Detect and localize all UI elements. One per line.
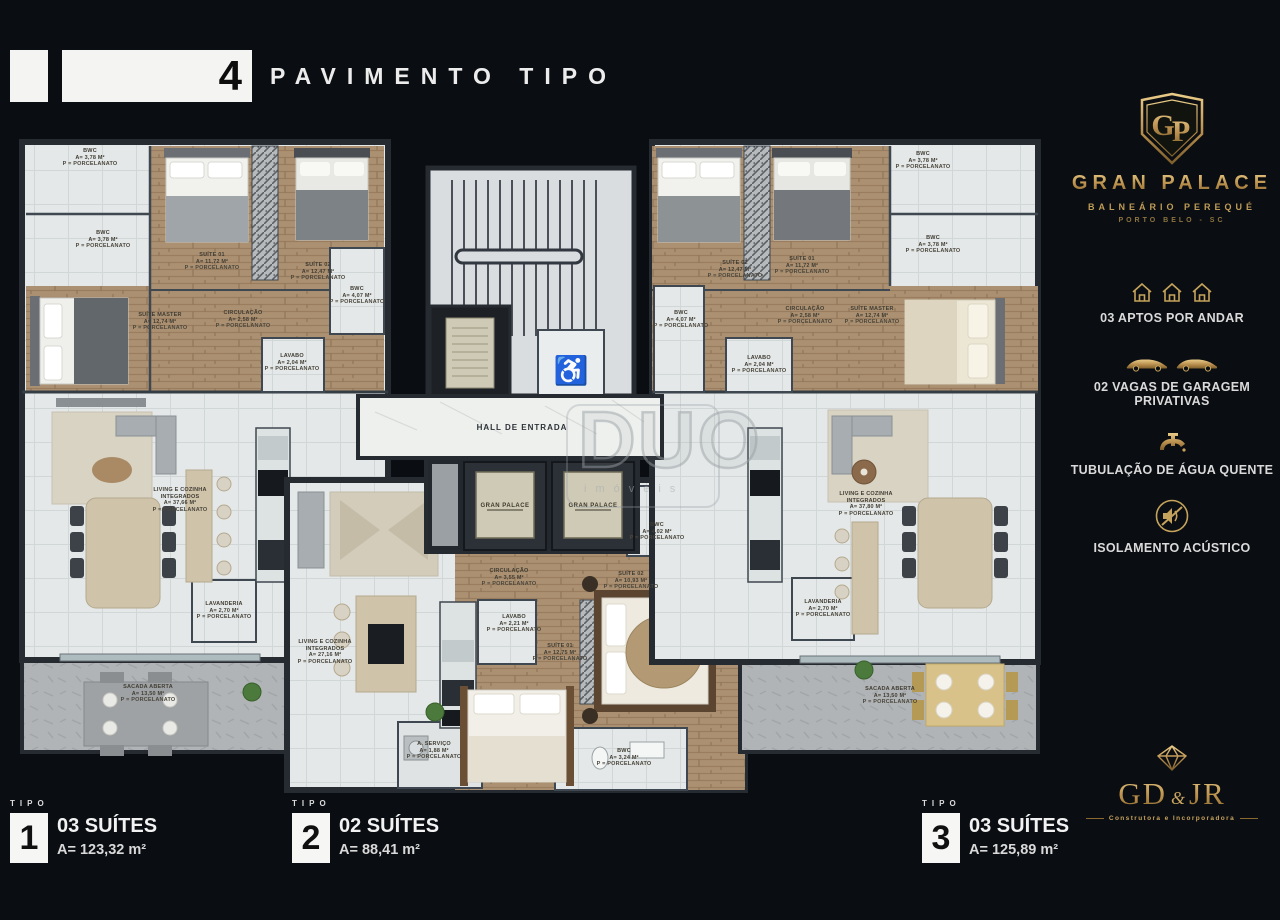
legend-tipo-caption: TIPO bbox=[922, 799, 1069, 808]
builder-ampersand: & bbox=[1167, 788, 1189, 808]
builder-name-right: JR bbox=[1189, 776, 1226, 811]
diamond-icon bbox=[1150, 744, 1194, 772]
legend-tipo-caption: TIPO bbox=[292, 799, 439, 808]
elevator-label: GRAN PALACE bbox=[568, 503, 617, 509]
bed-suite01-t1 bbox=[164, 148, 250, 242]
amenity-acustico: ISOLAMENTO ACÚSTICO bbox=[1067, 498, 1277, 555]
legend-area: A= 88,41 m² bbox=[339, 842, 439, 858]
houses-icon bbox=[1067, 282, 1277, 304]
header-bar: 4 bbox=[62, 50, 252, 102]
amenity-label: ISOLAMENTO ACÚSTICO bbox=[1067, 541, 1277, 555]
amenity-label: 02 VAGAS DE GARAGEM PRIVATIVAS bbox=[1067, 380, 1277, 408]
legend-tipo1: TIPO 1 03 SUÍTES A= 123,32 m² bbox=[10, 799, 157, 863]
brand-district: BALNEÁRIO PEREQUÉ bbox=[1067, 202, 1277, 212]
amenity-aptos: 03 APTOS POR ANDAR bbox=[1067, 282, 1277, 325]
cars-icon bbox=[1067, 355, 1277, 373]
svg-text:P: P bbox=[1172, 115, 1190, 148]
bed-suite01-t2 bbox=[460, 686, 574, 786]
gran-palace-shield-icon: G P bbox=[1139, 92, 1205, 166]
amenity-label: 03 APTOS POR ANDAR bbox=[1067, 311, 1277, 325]
floor-number: 4 bbox=[219, 55, 242, 97]
hall-label: HALL DE ENTRADA bbox=[477, 423, 568, 432]
legend-area: A= 123,32 m² bbox=[57, 842, 157, 858]
legend-suites: 03 SUÍTES bbox=[57, 815, 157, 838]
amenity-garagem: 02 VAGAS DE GARAGEM PRIVATIVAS bbox=[1067, 355, 1277, 408]
brand-name: GRAN PALACE bbox=[1067, 172, 1277, 195]
wheelchair-icon: ♿ bbox=[554, 354, 589, 387]
legend-tipo3: TIPO 3 03 SUÍTES A= 125,89 m² bbox=[922, 799, 1069, 863]
builder-tagline: Construtora e Incorporadora bbox=[1067, 815, 1277, 822]
elevator-1: GRAN PALACE bbox=[464, 462, 546, 550]
legend-number-box: 3 bbox=[922, 813, 960, 863]
builder-name-left: GD bbox=[1118, 776, 1167, 811]
bed-suite01-t3 bbox=[772, 148, 852, 240]
bed-suite02-t3 bbox=[656, 148, 742, 242]
elevator-2: GRAN PALACE bbox=[552, 462, 634, 550]
legend-tipo-caption: TIPO bbox=[10, 799, 157, 808]
amenity-label: TUBULAÇÃO DE ÁGUA QUENTE bbox=[1067, 463, 1277, 477]
legend-number-box: 1 bbox=[10, 813, 48, 863]
brand-city: PORTO BELO - SC bbox=[1067, 217, 1277, 224]
builder-logo: GD&JR Construtora e Incorporadora bbox=[1067, 744, 1277, 822]
elevator-label: GRAN PALACE bbox=[480, 503, 529, 509]
header-square-mark bbox=[10, 50, 48, 102]
speaker-muted-icon bbox=[1067, 498, 1277, 534]
amenity-agua-quente: TUBULAÇÃO DE ÁGUA QUENTE bbox=[1067, 430, 1277, 477]
bed-suite02-t1 bbox=[294, 148, 370, 240]
brand-block: G P GRAN PALACE BALNEÁRIO PEREQUÉ PORTO … bbox=[1067, 92, 1277, 224]
bed-suite-master-t1 bbox=[30, 296, 128, 386]
floor-plan-sheet: ♿ HALL DE ENTRADA GRAN PALACE GRAN PALAC… bbox=[0, 0, 1280, 920]
apartment-tipo3 bbox=[652, 142, 1038, 752]
legend-suites: 02 SUÍTES bbox=[339, 815, 439, 838]
legend-suites: 03 SUÍTES bbox=[969, 815, 1069, 838]
legend-tipo2: TIPO 2 02 SUÍTES A= 88,41 m² bbox=[292, 799, 439, 863]
page-title: PAVIMENTO TIPO bbox=[270, 50, 617, 102]
bed-suite-master-t3 bbox=[905, 298, 1005, 384]
legend-area: A= 125,89 m² bbox=[969, 842, 1069, 858]
legend-number-box: 2 bbox=[292, 813, 330, 863]
builder-name: GD&JR bbox=[1067, 776, 1277, 812]
faucet-icon bbox=[1067, 430, 1277, 456]
